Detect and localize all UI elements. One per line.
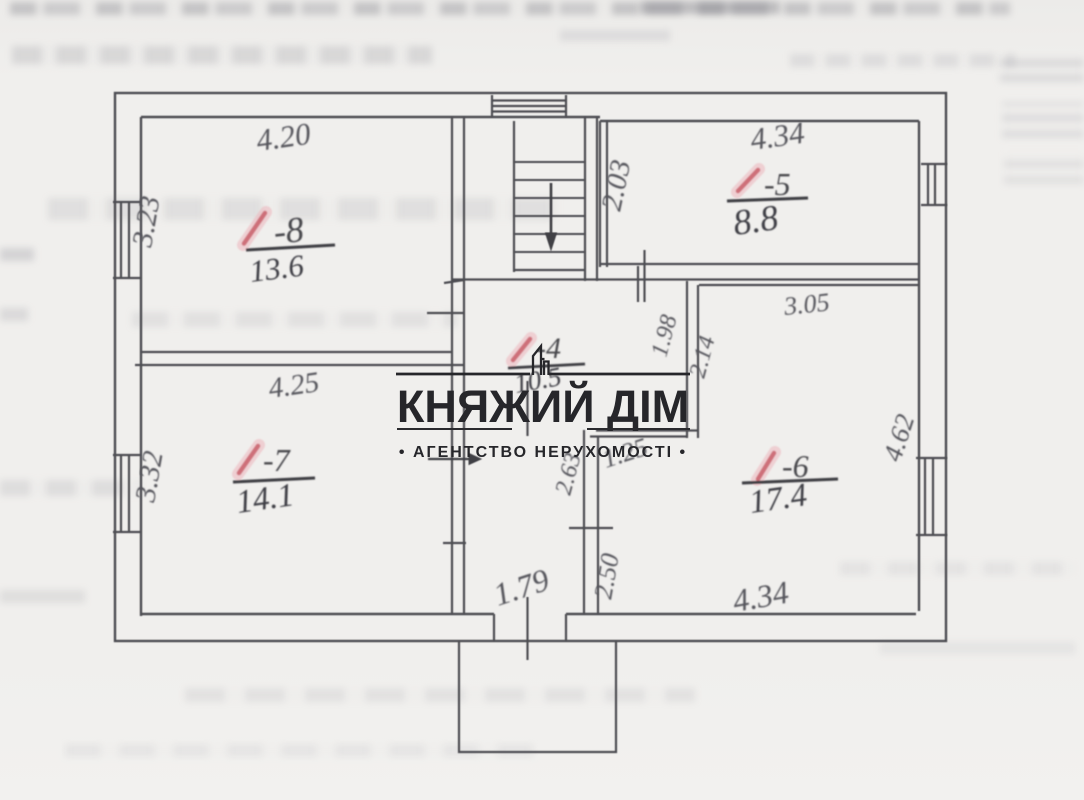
svg-text:2.03: 2.03: [596, 157, 638, 213]
svg-text:2.50: 2.50: [588, 551, 624, 601]
svg-text:• АГЕНТСТВО НЕРУХОМОСТІ •: • АГЕНТСТВО НЕРУХОМОСТІ •: [399, 444, 687, 461]
svg-text:2.14: 2.14: [685, 333, 721, 380]
svg-text:4.34: 4.34: [748, 115, 807, 157]
svg-text:4.62: 4.62: [877, 411, 920, 465]
svg-text:3.05: 3.05: [782, 287, 831, 321]
svg-text:4.34: 4.34: [730, 574, 791, 619]
svg-text:3.32: 3.32: [129, 449, 170, 506]
svg-text:1.79: 1.79: [489, 561, 553, 613]
svg-text:1.98: 1.98: [647, 312, 683, 359]
svg-text:4.25: 4.25: [267, 366, 322, 405]
svg-text:КНЯЖИЙ ДІМ: КНЯЖИЙ ДІМ: [397, 381, 689, 432]
svg-text:4.20: 4.20: [254, 116, 313, 158]
svg-text:14.1: 14.1: [234, 477, 296, 521]
svg-text:17.4: 17.4: [747, 477, 809, 521]
svg-text:13.6: 13.6: [248, 248, 307, 289]
svg-text:-5: -5: [764, 166, 791, 202]
svg-text:8.8: 8.8: [731, 197, 781, 243]
svg-text:-7: -7: [263, 442, 292, 478]
